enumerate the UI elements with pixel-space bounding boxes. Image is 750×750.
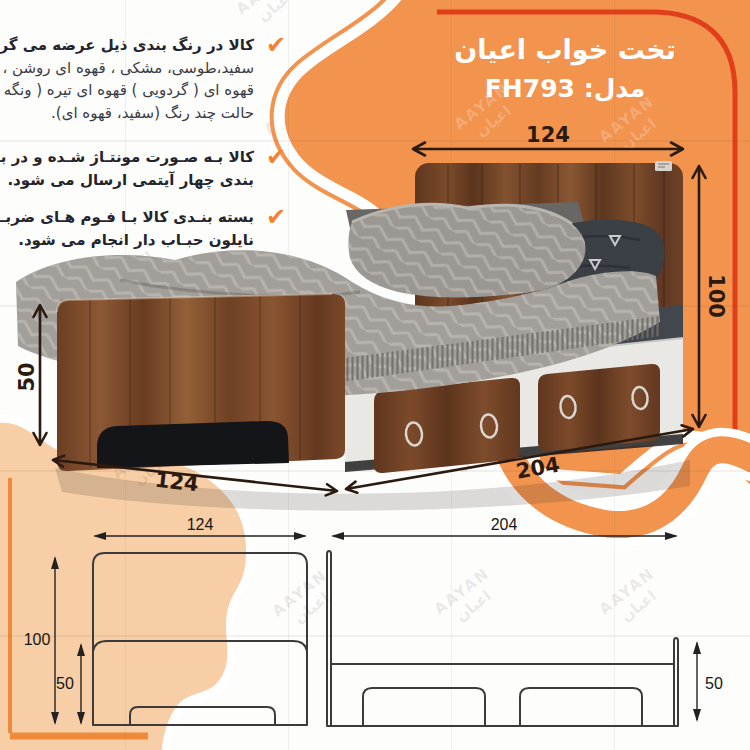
product-title: تخت خواب اعیان — [420, 33, 710, 67]
gray-pillow-pattern — [348, 204, 585, 297]
bullet-line: کالا در رنگ بندی ذیل عرضه می گردد: — [6, 34, 254, 57]
poster-page: AAYANاعیان AAYANاعیان AAYANاعیان AAYANاع… — [0, 0, 750, 750]
dim-label-bottom-width: 124 — [154, 468, 200, 497]
front-view-outline — [93, 553, 307, 725]
front-height-label: 100 — [24, 631, 51, 648]
bullet-line: حالت چند رنگ (سفید، قهوه ای). — [6, 102, 254, 125]
bullet-colors: ✔ کالا در رنگ بندی ذیل عرضه می گردد: سفی… — [6, 34, 286, 124]
product-model: مدل: FH793 — [420, 74, 710, 103]
side-headboard-profile — [327, 551, 331, 726]
bullet-assembly: ✔ کالا بـه صـورت مونتـاژ شـده و در بستـه… — [6, 146, 286, 191]
side-footboard-profile — [674, 638, 678, 726]
side-base-label: 50 — [705, 675, 723, 692]
dim-arrow-right-height — [693, 166, 706, 427]
side-drawer-1 — [363, 688, 485, 726]
side-drawer-2 — [520, 688, 642, 726]
bullet-line: بسته بنـدی کالا بـا فـوم هـای ضربـه گیـر… — [6, 206, 254, 229]
dim-label-left-height: 50 — [15, 362, 39, 391]
info-bullets: ✔ کالا در رنگ بندی ذیل عرضه می گردد: سفی… — [6, 34, 286, 251]
side-length-label: 204 — [491, 516, 518, 533]
front-view-divider — [93, 641, 307, 651]
bullet-line: سفید،طوسی، مشکی ، قهوه ای روشن ، — [6, 57, 254, 80]
check-icon: ✔ — [266, 143, 286, 171]
brand-tag — [655, 161, 672, 171]
title-block: تخت خواب اعیان مدل: FH793 — [420, 33, 710, 103]
bullet-line: بندی چهار آیتمی ارسال می شود. — [6, 169, 254, 192]
side-view-drawing: 204 50 — [327, 516, 723, 726]
front-view-plinth — [130, 707, 275, 725]
bullet-line: قهوه ای ( گردویی ) قهوه ای تیره ( ونگه )… — [6, 79, 254, 102]
bullet-packaging: ✔ بسته بنـدی کالا بـا فـوم هـای ضربـه گی… — [6, 206, 286, 251]
bullet-line: کالا بـه صـورت مونتـاژ شـده و در بستـه — [6, 146, 254, 169]
front-width-label: 124 — [187, 516, 214, 533]
dim-label-right-height: 100 — [704, 274, 728, 318]
front-view-drawing: 124 100 50 — [24, 516, 307, 725]
check-icon: ✔ — [266, 203, 286, 231]
footboard-arch-cutout — [97, 421, 289, 468]
dim-label-top-width: 124 — [526, 123, 570, 147]
bullet-line: نایلون حبـاب دار انجام می شود. — [6, 229, 254, 252]
front-base-label: 50 — [56, 675, 74, 692]
check-icon: ✔ — [266, 31, 286, 59]
